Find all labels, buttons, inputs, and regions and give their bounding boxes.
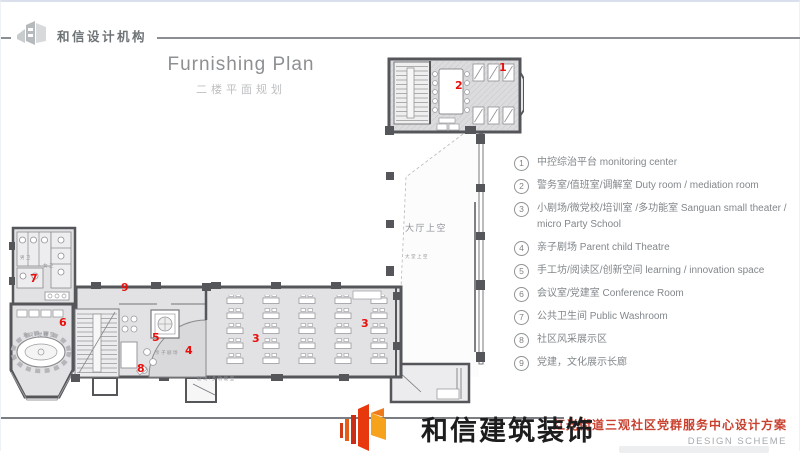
legend-label: 小剧场/微党校/培训室 /多功能室 Sanguan small theater …	[537, 201, 792, 233]
legend-label: 手工坊/阅读区/创新空间 learning / innovation space	[537, 263, 792, 279]
room-label: 男卫	[20, 256, 32, 261]
legend-label: 亲子剧场 Parent child Theatre	[537, 240, 792, 256]
plan-marker: 3	[252, 333, 260, 344]
legend-label: 警务室/值班室/调解室 Duty room / mediation room	[537, 178, 792, 194]
plan-marker: 3	[361, 318, 369, 329]
brand-name: 和信设计机构	[57, 26, 147, 45]
legend-item: 4 亲子剧场 Parent child Theatre	[514, 240, 792, 256]
faded-watermark	[619, 446, 769, 453]
presentation-slide: { "header": { "brand": "和信设计机构", "title"…	[0, 0, 800, 451]
room-label: 大堂上空	[405, 255, 429, 260]
floor-plan: 1233456789 大厅上空大堂上空会议/党建室亲子剧场剧场/多功能室男卫女卫	[9, 52, 524, 404]
room-label: 大厅上空	[405, 224, 447, 233]
legend-item: 3 小剧场/微党校/培训室 /多功能室 Sanguan small theate…	[514, 201, 792, 233]
plan-marker: 1	[499, 62, 507, 73]
plan-marker: 4	[185, 345, 193, 356]
plan-marker: 6	[59, 317, 67, 328]
legend-item: 8 社区风采展示区	[514, 332, 792, 348]
legend-label: 中控综治平台 monitoring center	[537, 155, 792, 171]
legend-label: 社区风采展示区	[537, 332, 792, 348]
legend-item: 5 手工坊/阅读区/创新空间 learning / innovation spa…	[514, 263, 792, 279]
legend-number-badge: 5	[514, 264, 529, 279]
legend-label: 党建，文化展示长廊	[537, 355, 792, 371]
legend-number-badge: 7	[514, 310, 529, 325]
room-label: 会议/党建室	[23, 333, 56, 338]
room-label: 亲子剧场	[155, 351, 179, 356]
room-label: 女卫	[43, 264, 55, 269]
legend-label: 会议室/党建室 Conference Room	[537, 286, 792, 302]
legend-item: 9 党建，文化展示长廊	[514, 355, 792, 371]
legend-item: 6 会议室/党建室 Conference Room	[514, 286, 792, 302]
plan-marker: 7	[30, 273, 38, 284]
legend-number-badge: 2	[514, 179, 529, 194]
plan-marker: 8	[137, 363, 145, 374]
legend: 1 中控综治平台 monitoring center 2 警务室/值班室/调解室…	[514, 155, 792, 378]
company-name: 和信建筑装饰	[421, 409, 595, 448]
legend-item: 1 中控综治平台 monitoring center	[514, 155, 792, 171]
plan-marker: 5	[152, 332, 160, 343]
legend-item: 7 公共卫生间 Public Washroom	[514, 309, 792, 325]
plan-marker: 9	[121, 282, 129, 293]
plan-marker: 2	[455, 80, 463, 91]
legend-number-badge: 3	[514, 202, 529, 217]
legend-number-badge: 8	[514, 333, 529, 348]
legend-number-badge: 6	[514, 287, 529, 302]
legend-item: 2 警务室/值班室/调解室 Duty room / mediation room	[514, 178, 792, 194]
legend-number-badge: 4	[514, 241, 529, 256]
legend-label: 公共卫生间 Public Washroom	[537, 309, 792, 325]
room-label: 剧场/多功能室	[197, 377, 236, 382]
legend-number-badge: 1	[514, 156, 529, 171]
brand-block: 和信设计机构	[11, 18, 157, 53]
company-logo-icon	[338, 404, 398, 458]
legend-number-badge: 9	[514, 356, 529, 371]
brand-logo-icon	[15, 18, 49, 53]
